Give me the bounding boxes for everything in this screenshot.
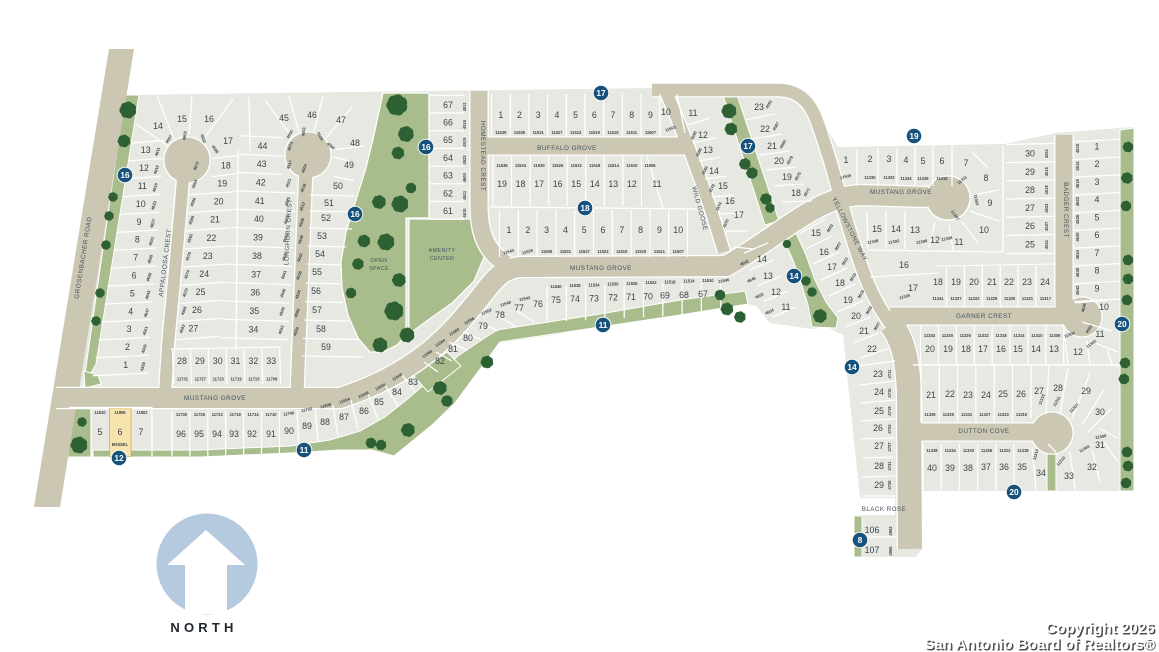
svg-text:6: 6 <box>118 427 123 437</box>
svg-text:11535: 11535 <box>514 130 526 135</box>
svg-text:32: 32 <box>249 356 259 366</box>
svg-text:14: 14 <box>847 362 857 372</box>
svg-text:18: 18 <box>580 203 590 213</box>
svg-text:38: 38 <box>963 463 973 473</box>
svg-text:CENTER: CENTER <box>430 256 455 262</box>
svg-text:46: 46 <box>307 110 317 120</box>
svg-text:75: 75 <box>551 295 561 305</box>
svg-text:11318: 11318 <box>996 333 1008 338</box>
svg-text:3: 3 <box>544 225 549 235</box>
svg-text:15: 15 <box>177 114 187 124</box>
svg-text:4553: 4553 <box>301 126 307 136</box>
svg-text:11507: 11507 <box>673 249 685 254</box>
svg-text:11314: 11314 <box>1013 333 1025 338</box>
svg-text:19: 19 <box>497 179 507 189</box>
svg-text:12: 12 <box>1073 347 1083 357</box>
svg-text:1: 1 <box>844 155 849 165</box>
svg-text:11332: 11332 <box>883 175 895 180</box>
svg-text:50: 50 <box>333 181 343 191</box>
svg-text:4711: 4711 <box>887 369 892 379</box>
svg-text:11526: 11526 <box>552 163 564 168</box>
svg-text:59: 59 <box>321 342 331 352</box>
svg-text:91: 91 <box>266 429 276 439</box>
svg-text:92: 92 <box>247 429 257 439</box>
svg-text:11530: 11530 <box>607 282 619 287</box>
svg-text:13: 13 <box>703 145 713 155</box>
svg-text:87: 87 <box>339 412 349 422</box>
svg-text:San Antonio Board of Realtors®: San Antonio Board of Realtors® <box>924 636 1154 652</box>
svg-text:7: 7 <box>964 158 969 168</box>
svg-text:21: 21 <box>926 390 936 400</box>
svg-text:19: 19 <box>909 131 919 141</box>
svg-text:29: 29 <box>874 480 884 490</box>
svg-text:17: 17 <box>978 344 988 354</box>
svg-text:11310: 11310 <box>1031 333 1043 338</box>
svg-text:4515: 4515 <box>1044 166 1049 176</box>
svg-text:9: 9 <box>1095 283 1100 293</box>
svg-text:11730: 11730 <box>176 412 188 417</box>
svg-text:106: 106 <box>865 525 880 535</box>
svg-text:4614: 4614 <box>1075 161 1080 171</box>
svg-text:11810: 11810 <box>94 410 106 415</box>
svg-text:89: 89 <box>302 421 312 431</box>
svg-text:6: 6 <box>940 156 945 166</box>
svg-text:17: 17 <box>827 262 837 272</box>
svg-text:24: 24 <box>981 390 991 400</box>
svg-text:11723: 11723 <box>213 377 225 382</box>
svg-text:4615: 4615 <box>462 208 467 218</box>
svg-text:11519: 11519 <box>616 249 628 254</box>
svg-text:22: 22 <box>945 389 955 399</box>
svg-text:24: 24 <box>874 387 884 397</box>
svg-text:11337: 11337 <box>950 296 962 301</box>
svg-text:3: 3 <box>887 154 892 164</box>
svg-text:82: 82 <box>435 356 445 366</box>
svg-text:35: 35 <box>1017 462 1027 472</box>
svg-text:11709: 11709 <box>266 377 278 382</box>
svg-text:4603: 4603 <box>462 172 467 182</box>
svg-text:8: 8 <box>984 173 989 183</box>
svg-text:4527: 4527 <box>1044 221 1049 231</box>
svg-text:18: 18 <box>835 278 845 288</box>
svg-text:11339: 11339 <box>924 412 936 417</box>
svg-text:10: 10 <box>673 225 683 235</box>
svg-text:4626: 4626 <box>1075 214 1080 224</box>
svg-text:4642: 4642 <box>1075 285 1080 295</box>
svg-text:16: 16 <box>350 209 360 219</box>
svg-text:BUFFALO GROVE: BUFFALO GROVE <box>537 145 597 152</box>
svg-text:4622: 4622 <box>1075 196 1080 206</box>
svg-text:11531: 11531 <box>560 249 572 254</box>
svg-text:BADGER CREST: BADGER CREST <box>1062 182 1069 238</box>
svg-text:19: 19 <box>782 172 792 182</box>
svg-text:48: 48 <box>350 138 360 148</box>
svg-text:29: 29 <box>1081 386 1091 396</box>
svg-text:11318: 11318 <box>1017 448 1029 453</box>
svg-text:10: 10 <box>1099 302 1109 312</box>
svg-text:11317: 11317 <box>1040 296 1052 301</box>
svg-text:4523: 4523 <box>462 155 467 165</box>
svg-text:19: 19 <box>943 344 953 354</box>
svg-text:10: 10 <box>661 107 671 117</box>
svg-text:10: 10 <box>136 199 146 209</box>
svg-text:11526: 11526 <box>626 281 638 286</box>
svg-text:14: 14 <box>891 224 901 234</box>
svg-text:42: 42 <box>256 178 266 188</box>
svg-text:11726: 11726 <box>194 412 206 417</box>
svg-text:107: 107 <box>865 545 880 555</box>
svg-text:4: 4 <box>128 306 133 316</box>
svg-text:11522: 11522 <box>645 280 657 285</box>
svg-text:34: 34 <box>248 324 258 334</box>
svg-text:15: 15 <box>571 179 581 189</box>
svg-text:74: 74 <box>570 294 580 304</box>
svg-text:17: 17 <box>908 283 918 293</box>
svg-text:54: 54 <box>315 249 325 259</box>
svg-text:40: 40 <box>254 214 264 224</box>
svg-text:11802: 11802 <box>136 410 148 415</box>
svg-text:8: 8 <box>638 225 643 235</box>
svg-text:4723: 4723 <box>887 424 892 434</box>
svg-text:23: 23 <box>873 369 883 379</box>
svg-text:25: 25 <box>1025 240 1035 250</box>
svg-text:62: 62 <box>443 188 453 198</box>
svg-text:2: 2 <box>1095 159 1100 169</box>
svg-text:20: 20 <box>925 344 935 354</box>
svg-text:67: 67 <box>443 100 453 110</box>
svg-text:11: 11 <box>954 237 963 247</box>
svg-text:12: 12 <box>698 130 708 140</box>
svg-text:11322: 11322 <box>978 333 990 338</box>
svg-text:16: 16 <box>553 179 563 189</box>
svg-text:11: 11 <box>652 179 661 189</box>
svg-text:11506: 11506 <box>644 163 656 168</box>
svg-text:18: 18 <box>221 160 231 170</box>
svg-text:11323: 11323 <box>998 412 1010 417</box>
svg-text:MODEL: MODEL <box>112 442 129 447</box>
svg-text:28: 28 <box>874 461 884 471</box>
svg-text:5: 5 <box>1095 212 1100 222</box>
svg-text:1: 1 <box>123 360 128 370</box>
svg-text:11530: 11530 <box>534 163 546 168</box>
svg-text:17: 17 <box>223 136 233 146</box>
svg-text:11534: 11534 <box>588 282 600 287</box>
svg-text:14: 14 <box>153 121 163 131</box>
svg-text:11514: 11514 <box>683 279 695 284</box>
svg-text:11518: 11518 <box>589 163 601 168</box>
svg-text:19: 19 <box>843 295 853 305</box>
svg-text:HOMESTEAD CREST: HOMESTEAD CREST <box>479 121 486 191</box>
svg-text:6: 6 <box>132 271 137 281</box>
svg-text:13: 13 <box>141 145 151 155</box>
svg-text:9: 9 <box>657 225 662 235</box>
svg-text:22: 22 <box>1004 277 1014 287</box>
svg-text:11321: 11321 <box>1022 296 1034 301</box>
svg-text:4727: 4727 <box>887 442 892 452</box>
svg-text:6: 6 <box>601 225 606 235</box>
svg-text:23: 23 <box>1022 277 1032 287</box>
svg-text:7: 7 <box>133 253 138 263</box>
svg-text:MUSTANG GROVE: MUSTANG GROVE <box>184 395 246 402</box>
svg-text:17: 17 <box>596 88 606 98</box>
svg-text:3: 3 <box>1095 177 1100 187</box>
svg-text:56: 56 <box>311 286 321 296</box>
svg-text:4: 4 <box>904 155 909 165</box>
svg-text:26: 26 <box>873 423 883 433</box>
svg-text:11527: 11527 <box>579 249 591 254</box>
svg-text:68: 68 <box>679 290 689 300</box>
svg-text:4511: 4511 <box>1044 148 1049 158</box>
svg-text:11: 11 <box>300 445 309 455</box>
svg-text:4715: 4715 <box>887 388 892 398</box>
svg-text:1: 1 <box>1095 141 1100 151</box>
svg-text:69: 69 <box>660 291 670 301</box>
svg-text:15: 15 <box>872 224 882 234</box>
svg-text:22: 22 <box>760 124 770 134</box>
svg-text:4515: 4515 <box>462 119 467 129</box>
svg-text:85: 85 <box>374 397 384 407</box>
svg-text:SPACE: SPACE <box>369 266 389 272</box>
svg-text:4523: 4523 <box>1044 203 1049 213</box>
svg-text:11: 11 <box>781 302 790 312</box>
svg-text:34: 34 <box>1036 468 1046 478</box>
svg-text:11538: 11538 <box>569 283 581 288</box>
svg-text:2: 2 <box>125 342 130 352</box>
svg-text:11523: 11523 <box>570 130 582 135</box>
svg-text:17: 17 <box>734 210 744 220</box>
svg-text:11330: 11330 <box>942 333 954 338</box>
svg-text:21: 21 <box>859 326 869 336</box>
svg-text:23: 23 <box>203 251 213 261</box>
svg-text:41: 41 <box>255 196 265 206</box>
svg-text:4: 4 <box>1095 195 1100 205</box>
svg-text:11330: 11330 <box>963 448 975 453</box>
svg-text:86: 86 <box>359 406 369 416</box>
svg-text:21: 21 <box>767 141 777 151</box>
svg-text:11514: 11514 <box>608 163 620 168</box>
svg-text:94: 94 <box>212 429 222 439</box>
svg-text:4610: 4610 <box>1075 143 1080 153</box>
svg-text:12: 12 <box>771 287 781 297</box>
svg-text:16: 16 <box>819 247 829 257</box>
svg-text:MUSTANG GROVE: MUSTANG GROVE <box>570 265 632 272</box>
svg-text:84: 84 <box>392 387 402 397</box>
svg-text:83: 83 <box>408 377 418 387</box>
svg-text:9: 9 <box>137 217 142 227</box>
svg-text:4719: 4719 <box>887 406 892 416</box>
svg-text:63: 63 <box>443 171 453 181</box>
svg-text:95: 95 <box>194 429 204 439</box>
svg-text:11333: 11333 <box>968 296 980 301</box>
svg-text:27: 27 <box>188 323 198 333</box>
svg-text:4638: 4638 <box>1075 267 1080 277</box>
svg-text:26: 26 <box>1025 221 1035 231</box>
svg-text:4618: 4618 <box>1075 179 1080 189</box>
svg-text:MUSTANG GROVE: MUSTANG GROVE <box>870 189 932 196</box>
svg-text:11510: 11510 <box>702 278 714 283</box>
svg-text:47: 47 <box>336 115 346 125</box>
svg-text:18: 18 <box>961 344 971 354</box>
svg-text:15: 15 <box>718 181 728 191</box>
svg-text:8: 8 <box>1095 266 1100 276</box>
svg-text:8: 8 <box>858 535 863 545</box>
svg-text:30: 30 <box>1025 149 1035 159</box>
svg-text:7: 7 <box>1095 248 1100 258</box>
svg-text:81: 81 <box>448 344 458 354</box>
svg-text:15: 15 <box>811 228 821 238</box>
svg-text:14: 14 <box>709 166 719 176</box>
svg-text:51: 51 <box>324 198 334 208</box>
svg-text:11334: 11334 <box>900 176 912 181</box>
svg-text:21: 21 <box>210 215 220 225</box>
svg-text:11715: 11715 <box>248 377 260 382</box>
svg-text:13: 13 <box>763 271 773 281</box>
svg-text:11540: 11540 <box>550 284 562 289</box>
svg-text:6: 6 <box>1095 230 1100 240</box>
svg-text:11710: 11710 <box>265 412 277 417</box>
svg-text:11325: 11325 <box>1004 296 1016 301</box>
svg-text:4519: 4519 <box>1044 185 1049 195</box>
svg-text:16: 16 <box>120 170 130 180</box>
svg-text:7: 7 <box>139 427 144 437</box>
svg-text:11522: 11522 <box>571 163 583 168</box>
svg-text:BLACK ROSE: BLACK ROSE <box>862 506 907 513</box>
svg-text:11336: 11336 <box>917 176 929 181</box>
svg-text:14: 14 <box>1031 344 1041 354</box>
svg-text:93: 93 <box>229 429 239 439</box>
svg-text:66: 66 <box>443 118 453 128</box>
svg-text:13: 13 <box>608 179 618 189</box>
svg-text:5: 5 <box>573 110 578 120</box>
svg-text:11527: 11527 <box>551 130 563 135</box>
svg-text:57: 57 <box>312 305 322 315</box>
svg-text:38: 38 <box>252 251 262 261</box>
svg-text:11714: 11714 <box>248 412 260 417</box>
svg-text:80: 80 <box>463 333 473 343</box>
svg-text:4731: 4731 <box>887 461 892 471</box>
svg-text:11534: 11534 <box>515 163 527 168</box>
svg-text:11335: 11335 <box>943 412 955 417</box>
svg-text:23: 23 <box>754 102 764 112</box>
svg-text:11511: 11511 <box>626 130 638 135</box>
svg-text:26: 26 <box>1016 389 1026 399</box>
svg-text:24: 24 <box>1040 277 1050 287</box>
svg-text:11718: 11718 <box>230 412 242 417</box>
svg-text:31: 31 <box>1095 440 1105 450</box>
svg-text:9: 9 <box>988 198 993 208</box>
svg-text:2: 2 <box>517 110 522 120</box>
svg-text:11538: 11538 <box>496 163 508 168</box>
svg-text:NORTH: NORTH <box>170 620 237 635</box>
svg-text:7: 7 <box>619 225 624 235</box>
svg-text:65: 65 <box>443 135 453 145</box>
svg-text:61: 61 <box>443 206 453 216</box>
svg-text:20: 20 <box>214 197 224 207</box>
svg-text:11315: 11315 <box>936 176 948 181</box>
svg-text:Copyright 2026: Copyright 2026 <box>1045 620 1154 637</box>
svg-text:11306: 11306 <box>1049 333 1061 338</box>
svg-text:19: 19 <box>951 277 961 287</box>
svg-text:27: 27 <box>1025 203 1035 213</box>
svg-text:GARNER CREST: GARNER CREST <box>956 313 1012 320</box>
svg-text:5: 5 <box>582 225 587 235</box>
svg-text:11327: 11327 <box>979 412 991 417</box>
svg-text:4: 4 <box>554 110 559 120</box>
svg-text:43: 43 <box>257 159 267 169</box>
svg-text:24: 24 <box>199 269 209 279</box>
svg-text:28: 28 <box>1025 185 1035 195</box>
svg-text:25: 25 <box>874 406 884 416</box>
svg-text:40: 40 <box>927 463 937 473</box>
svg-text:67: 67 <box>698 289 708 299</box>
svg-text:5: 5 <box>98 427 103 437</box>
svg-text:30: 30 <box>1095 407 1105 417</box>
svg-text:4519: 4519 <box>462 137 467 147</box>
svg-text:20: 20 <box>1009 487 1019 497</box>
svg-text:11: 11 <box>599 320 608 330</box>
svg-text:12: 12 <box>930 235 940 245</box>
svg-text:25: 25 <box>998 389 1008 399</box>
svg-text:58: 58 <box>316 324 326 334</box>
svg-text:11731: 11731 <box>177 377 189 382</box>
svg-text:35: 35 <box>249 306 259 316</box>
svg-text:11515: 11515 <box>635 249 647 254</box>
svg-text:23: 23 <box>963 390 973 400</box>
svg-text:4511: 4511 <box>462 102 467 112</box>
svg-text:11: 11 <box>1095 329 1104 339</box>
svg-text:4634: 4634 <box>1075 250 1080 260</box>
svg-text:33: 33 <box>266 356 276 366</box>
svg-text:28: 28 <box>177 356 187 366</box>
svg-text:1: 1 <box>498 110 503 120</box>
svg-text:4630: 4630 <box>1075 232 1080 242</box>
svg-text:11531: 11531 <box>533 130 545 135</box>
svg-text:11334: 11334 <box>945 448 957 453</box>
svg-text:11: 11 <box>688 108 697 118</box>
svg-text:12: 12 <box>627 179 637 189</box>
svg-text:17: 17 <box>534 179 544 189</box>
svg-text:88: 88 <box>320 417 330 427</box>
svg-text:36: 36 <box>999 462 1009 472</box>
svg-text:13: 13 <box>1049 344 1059 354</box>
svg-text:52: 52 <box>321 213 331 223</box>
svg-text:5: 5 <box>921 156 926 166</box>
svg-text:18: 18 <box>933 277 943 287</box>
svg-text:11326: 11326 <box>981 448 993 453</box>
svg-text:14: 14 <box>789 271 799 281</box>
svg-text:15: 15 <box>1013 344 1023 354</box>
svg-text:13: 13 <box>910 225 920 235</box>
svg-text:79: 79 <box>478 321 488 331</box>
svg-text:11319: 11319 <box>1016 412 1028 417</box>
svg-text:11330: 11330 <box>864 175 876 180</box>
svg-text:14: 14 <box>590 179 600 189</box>
svg-text:11535: 11535 <box>541 249 553 254</box>
svg-text:44: 44 <box>258 141 268 151</box>
svg-text:7: 7 <box>611 110 616 120</box>
svg-text:29: 29 <box>1025 167 1035 177</box>
svg-text:20: 20 <box>1117 319 1127 329</box>
svg-text:33: 33 <box>1064 471 1074 481</box>
svg-text:78: 78 <box>495 310 505 320</box>
svg-text:4902: 4902 <box>888 526 893 536</box>
svg-text:4611: 4611 <box>462 190 467 200</box>
svg-text:16: 16 <box>204 114 214 124</box>
svg-text:20: 20 <box>969 277 979 287</box>
svg-text:11326: 11326 <box>960 333 972 338</box>
svg-text:11322: 11322 <box>999 448 1011 453</box>
svg-text:37: 37 <box>981 462 991 472</box>
